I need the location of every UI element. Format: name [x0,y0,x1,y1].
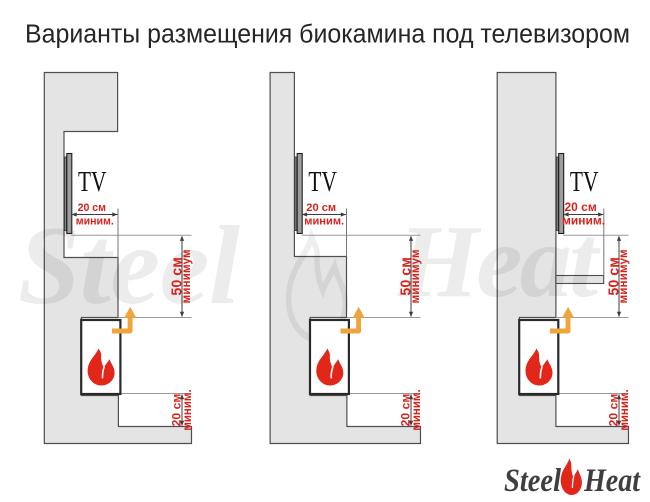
svg-text:миним.: миним. [411,389,423,430]
svg-text:20 см: 20 см [306,202,336,214]
svg-text:TV: TV [570,166,599,198]
svg-text:миним.: миним. [562,214,605,228]
svg-text:Heat: Heat [583,463,641,499]
svg-text:20 см: 20 см [78,202,107,214]
svg-text:минимум: минимум [179,249,193,303]
svg-text:Варианты размещения биокамина: Варианты размещения биокамина под телеви… [25,21,630,49]
svg-text:миним.: миним. [76,216,114,228]
svg-text:минимум: минимум [616,249,630,303]
svg-text:Steel: Steel [504,463,562,499]
svg-text:миним.: миним. [304,216,344,228]
svg-text:TV: TV [78,166,107,198]
svg-text:миним.: миним. [182,389,194,430]
svg-text:TV: TV [308,166,337,198]
svg-text:минимум: минимум [408,249,422,303]
svg-text:миним.: миним. [619,389,631,430]
svg-text:20 см: 20 см [564,200,596,214]
